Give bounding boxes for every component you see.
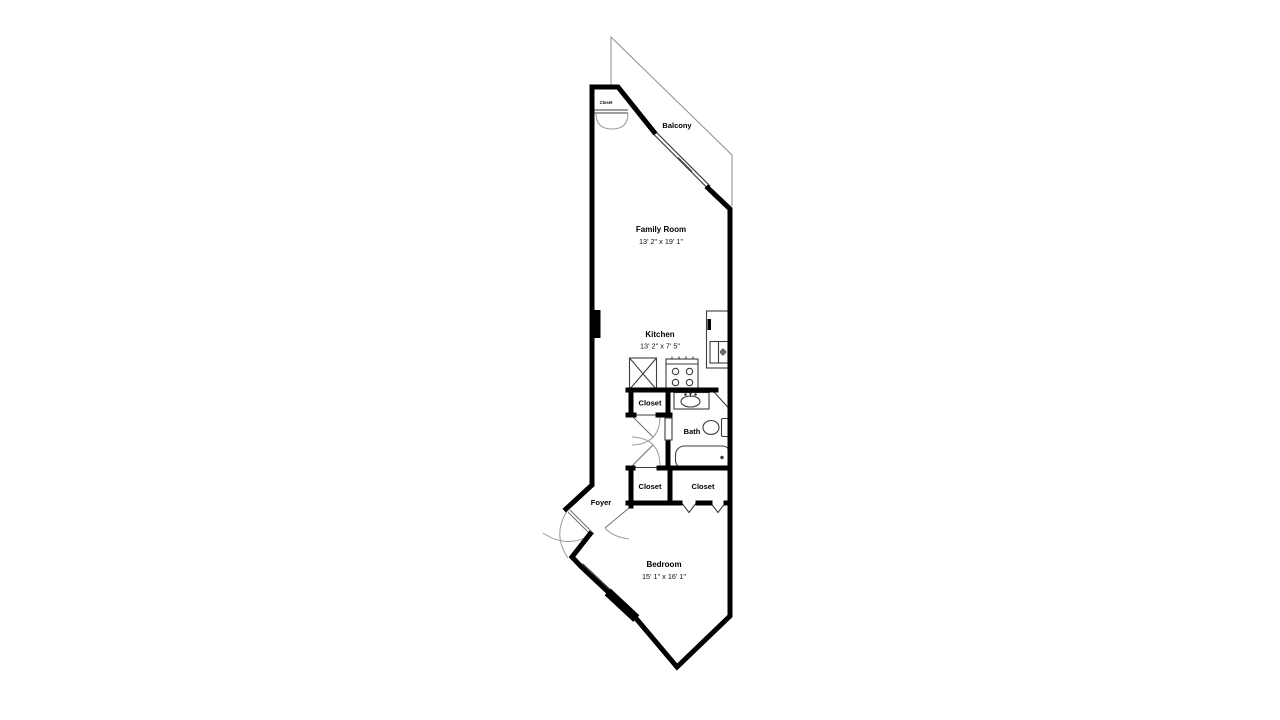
label-bedroom: Bedroom xyxy=(646,560,681,569)
hall-door-top-swing-icon xyxy=(632,415,660,445)
label-closet-bedroom-right: Closet xyxy=(692,482,715,491)
sliding-door-icon xyxy=(653,131,710,189)
top-closet-door-swing-icon xyxy=(596,113,628,129)
floorplan-svg: Closet Balcony Family Room 13' 2" x 19' … xyxy=(0,0,1280,720)
kitchen-counter xyxy=(707,311,731,368)
refrigerator-icon xyxy=(630,358,657,390)
label-closet-hall: Closet xyxy=(639,399,662,408)
floorplan-page: Closet Balcony Family Room 13' 2" x 19' … xyxy=(0,0,1280,720)
label-family-room-dims: 13' 2" x 19' 1" xyxy=(639,237,683,246)
label-balcony: Balcony xyxy=(662,121,692,130)
toilet-icon xyxy=(703,419,730,437)
stove-icon xyxy=(666,357,698,390)
bedroom-door-swing-icon xyxy=(605,508,629,539)
kitchen-sink-icon xyxy=(710,342,728,364)
label-kitchen: Kitchen xyxy=(645,330,674,339)
bath-sink-icon xyxy=(674,392,709,409)
structural-column xyxy=(590,310,601,338)
label-closet-bedroom-left: Closet xyxy=(639,482,662,491)
entry-door-swing-icon xyxy=(543,510,594,558)
label-family-room: Family Room xyxy=(636,225,686,234)
label-kitchen-dims: 13' 2" x 7' 5" xyxy=(640,342,680,351)
top-closet-shelf xyxy=(592,110,628,113)
label-bath: Bath xyxy=(684,427,701,436)
label-closet-top: Closet xyxy=(600,100,613,105)
counter-handle xyxy=(708,319,712,330)
label-bedroom-dims: 15' 1" x 16' 1" xyxy=(642,572,686,581)
bath-hall-door-leaf xyxy=(665,418,672,440)
label-foyer: Foyer xyxy=(591,498,612,507)
